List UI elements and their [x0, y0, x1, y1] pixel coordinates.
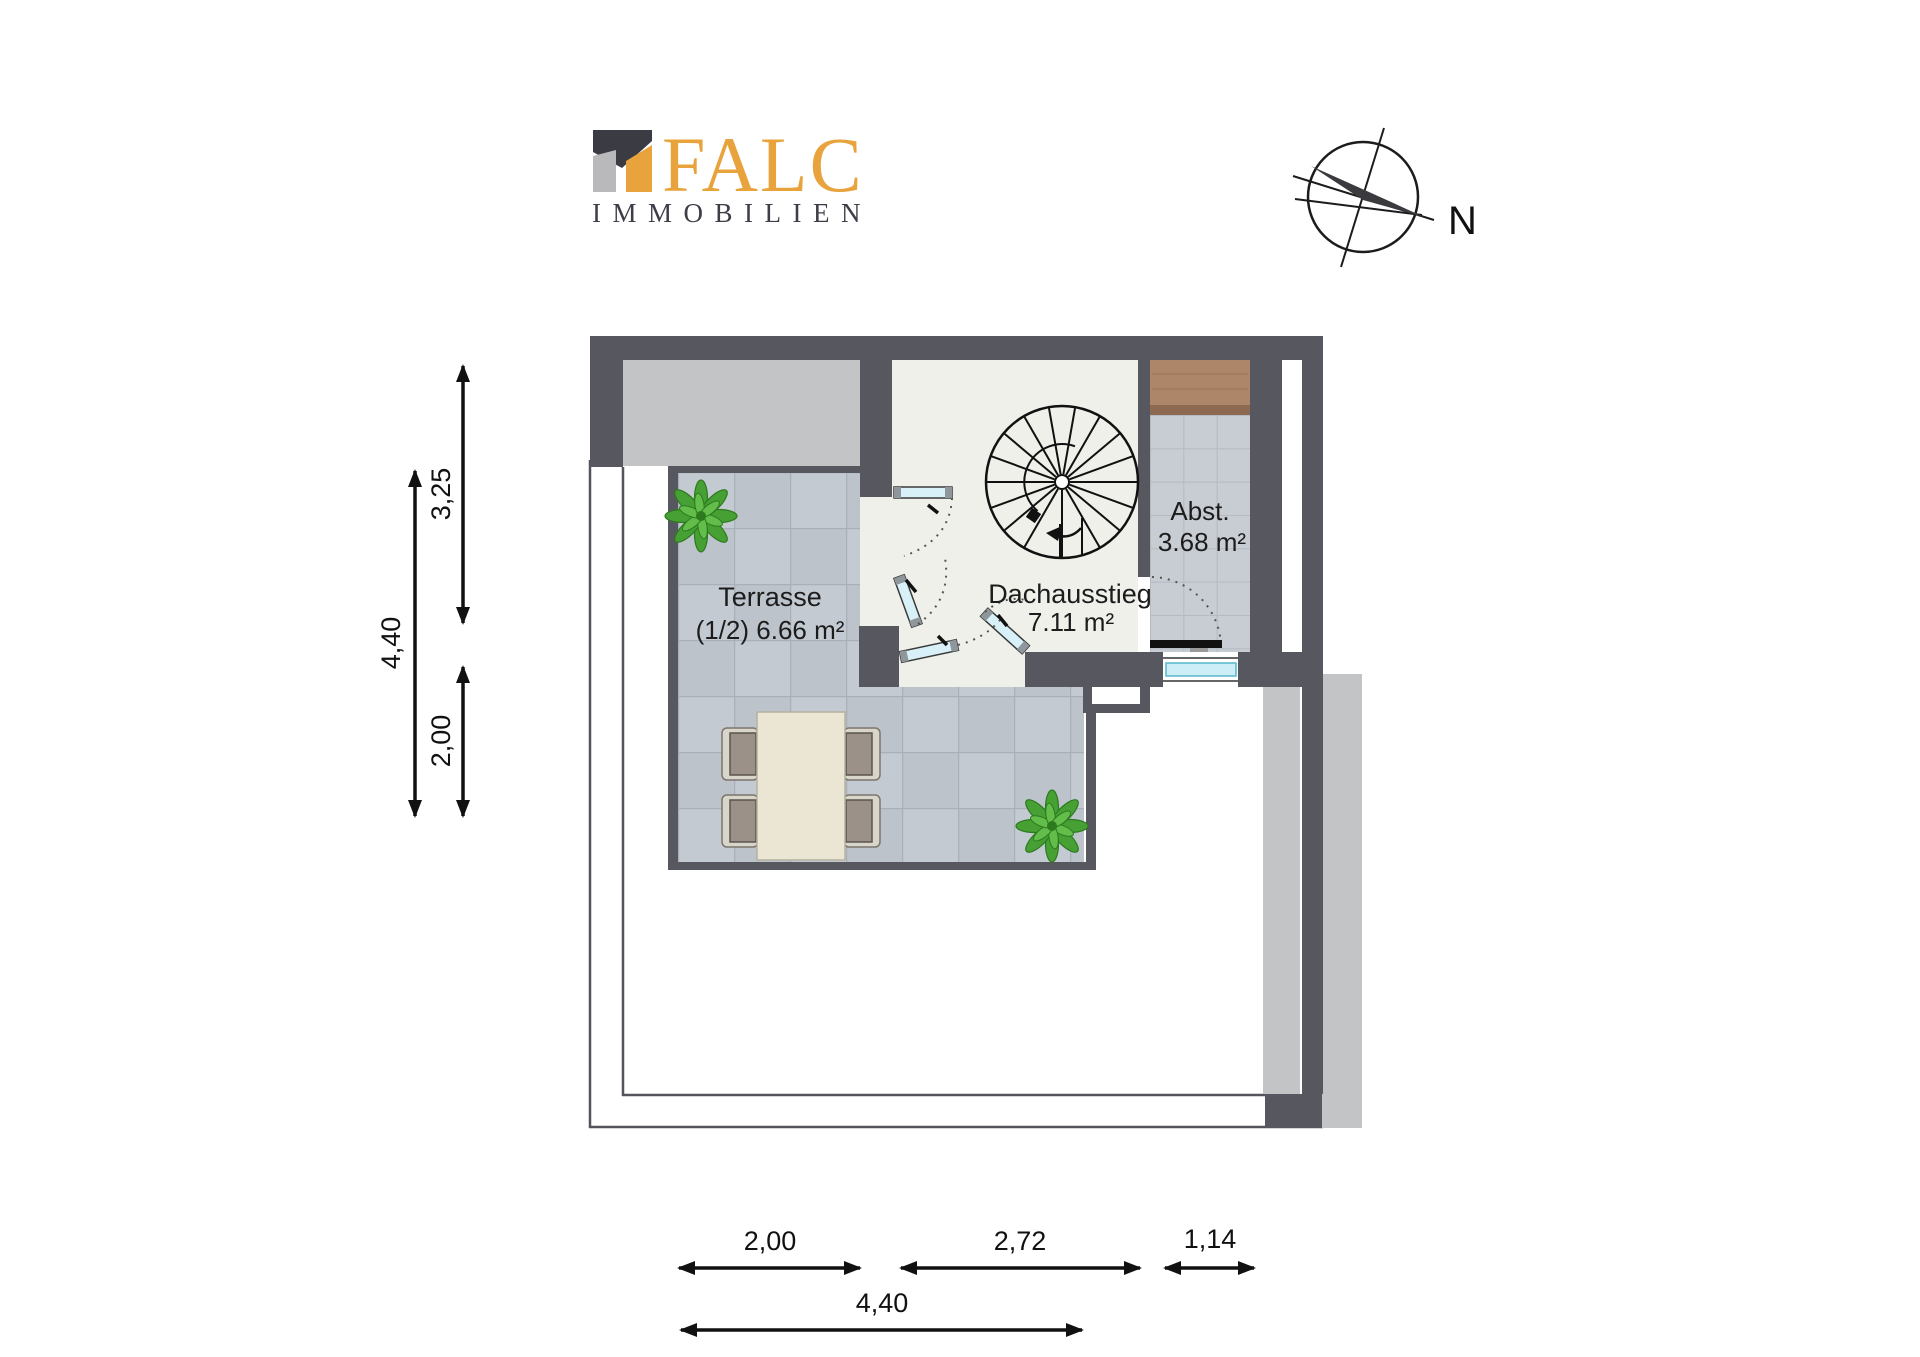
falc-logo: FALC IMMOBILIEN: [592, 121, 872, 228]
floor-plan-page: FALC IMMOBILIEN N: [0, 0, 1920, 1357]
dim-left-4-40: 4,40: [376, 617, 406, 670]
dim-bottom-2-72: 2,72: [994, 1226, 1047, 1256]
dim-left-2-00: 2,00: [426, 715, 456, 768]
dim-left-3-25: 3,25: [426, 468, 456, 521]
potted-plant: [1016, 790, 1088, 862]
compass-icon: [1293, 128, 1434, 267]
dim-bottom-4-40: 4,40: [856, 1288, 909, 1318]
falc-logo-mark-icon: [593, 130, 652, 192]
logo-brand-text: FALC: [662, 121, 864, 208]
glass-door-top: [894, 487, 952, 498]
duct-opening: [1092, 687, 1140, 704]
chair: [844, 795, 880, 847]
door-sill: [1150, 640, 1222, 648]
terrace-area-label: (1/2) 6.66 m²: [696, 615, 845, 645]
right-wall-channel: [1282, 360, 1302, 652]
storage-area-label: 3.68 m²: [1158, 527, 1246, 557]
dining-table: [757, 712, 845, 860]
terrace-label: Terrasse: [718, 582, 822, 612]
dimensions-bottom: [679, 1268, 1254, 1330]
compass-north-label: N: [1448, 199, 1477, 243]
dim-bottom-2-00: 2,00: [744, 1226, 797, 1256]
dim-bottom-1-14: 1,14: [1184, 1224, 1237, 1254]
wardrobe: [1150, 360, 1250, 415]
storage-label: Abst.: [1170, 496, 1229, 526]
roof-exit-area-label: 7.11 m²: [1028, 607, 1115, 637]
chair: [844, 728, 880, 780]
floor-plan-canvas: FALC IMMOBILIEN N: [0, 0, 1920, 1357]
logo-subtitle-text: IMMOBILIEN: [592, 198, 872, 228]
window: [1163, 652, 1238, 687]
chair: [722, 728, 758, 780]
potted-plant: [665, 480, 737, 552]
chair: [722, 795, 758, 847]
roof-exit-label: Dachausstieg: [988, 579, 1152, 609]
